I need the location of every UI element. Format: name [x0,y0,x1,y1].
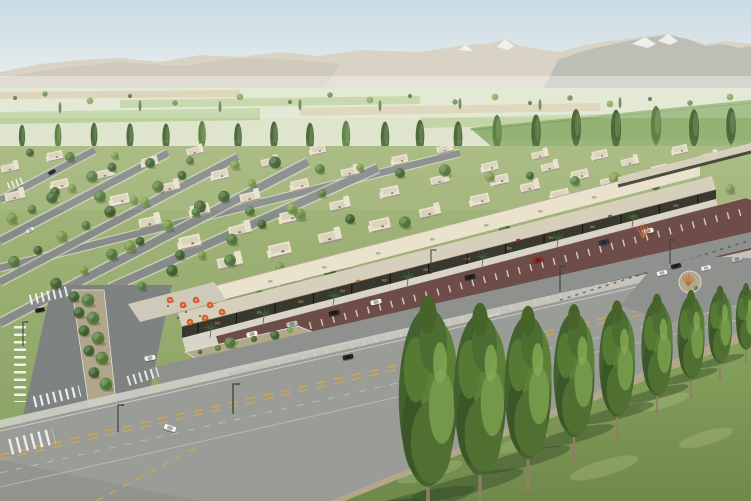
island-shrub [251,336,257,342]
patio-table [185,311,187,313]
rooftop-unit [322,266,327,269]
island-shrub [198,350,203,355]
island-shrub [287,327,293,333]
rooftop-unit [268,280,273,283]
shrub [694,286,698,290]
aerial-rendering [0,0,751,501]
rooftop-unit [484,224,489,227]
storefront-window [673,204,678,207]
island-shrub [215,345,221,351]
patio-table [167,305,169,307]
patio-table [199,315,201,317]
rooftop-unit [376,252,381,255]
storefront-window [340,290,345,293]
patio-table [177,317,179,319]
storefront-window [423,268,428,271]
storefront-window [507,247,512,250]
aerial-rendering-viewport [0,0,751,501]
storefront-window [298,300,303,303]
rooftop-unit [592,196,597,199]
rooftop-unit [430,238,435,241]
rooftop-unit [538,210,543,213]
storefront-window [590,226,595,229]
storefront-window [382,279,387,282]
